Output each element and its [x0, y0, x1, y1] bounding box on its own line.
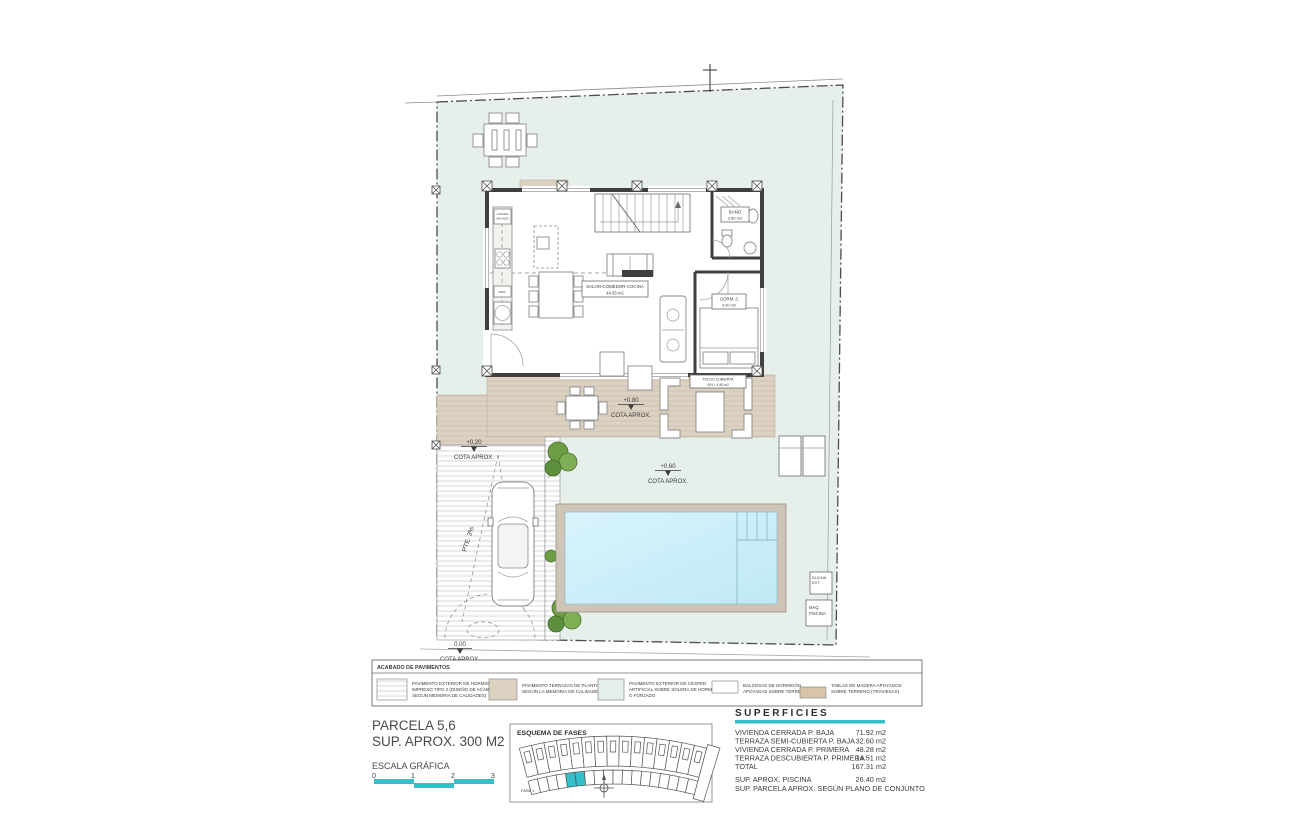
bush — [545, 550, 557, 562]
fase-parcel-cell — [613, 770, 623, 784]
drawing-sheet: PTE. 3% — [0, 0, 1290, 840]
fase-parcel-cell — [610, 741, 616, 752]
scale-label: ESCALA GRÁFICA — [372, 761, 450, 771]
svg-text:EXT.: EXT. — [812, 580, 820, 585]
wood-sleeper-swatch — [800, 687, 826, 698]
superficies-rows: VIVIENDA CERRADA P. BAJA 71.92 m2 TERRAZ… — [735, 728, 925, 793]
svg-text:+0.20: +0.20 — [466, 440, 482, 446]
svg-text:0: 0 — [372, 773, 376, 780]
car — [488, 482, 538, 606]
utility-pole — [703, 64, 717, 92]
salon-label: SALON-COMEDOR-COCINA 44.93 m2 — [582, 281, 648, 297]
svg-text:APOYADAS SOBRE TERRENO: APOYADAS SOBRE TERRENO — [743, 689, 808, 694]
wall-stub — [622, 270, 653, 277]
svg-text:TOLDO CUBIERTA: TOLDO CUBIERTA — [702, 378, 734, 382]
esquema-de-fases: ESQUEMA DE FASES FASE 1 — [510, 724, 720, 802]
fase-parcel-cell — [584, 771, 594, 786]
table-row-value: 167.31 m2 — [852, 762, 886, 771]
svg-text:PISCINA: PISCINA — [809, 611, 826, 616]
fase-parcel-cell — [631, 771, 641, 786]
esquema-title: ESQUEMA DE FASES — [517, 730, 587, 737]
parcel-title: PARCELA 5,6 — [372, 718, 456, 733]
svg-text:9.90 m2: 9.90 m2 — [722, 304, 736, 308]
svg-text:SALON-COMEDOR-COCINA: SALON-COMEDOR-COCINA — [586, 284, 644, 289]
dorm-label: DORM. 3 9.90 m2 — [712, 294, 746, 309]
svg-text:LAVADO: LAVADO — [497, 212, 509, 216]
svg-text:0.00: 0.00 — [454, 642, 466, 648]
svg-text:COTA APROX.: COTA APROX. — [648, 479, 688, 485]
svg-text:IMPRESO TIPO 2 (DISEÑO DE ACAB: IMPRESO TIPO 2 (DISEÑO DE ACABADO — [412, 686, 499, 692]
superficies-title: SUPERFICIES — [735, 708, 829, 719]
fase-label: FASE 1 — [521, 788, 535, 793]
pool-machinery-box: MAQ. PISCINA — [806, 600, 832, 626]
svg-text:DORM. 3: DORM. 3 — [720, 297, 738, 302]
pool — [556, 504, 786, 612]
fase-parcel-cell — [573, 743, 580, 755]
fase-parcel-cell — [634, 742, 640, 753]
toldo-label: TOLDO CUBIERTA S/N = 4.50 m2 — [690, 375, 746, 388]
superficies-table: SUPERFICIES VIVIENDA CERRADA P. BAJA 71.… — [735, 708, 925, 793]
svg-text:+0.80: +0.80 — [623, 398, 639, 404]
piscina-value: 26.40 m2 — [856, 775, 886, 784]
svg-text:MAQ.: MAQ. — [809, 605, 820, 610]
kitchen-counter: LAVADO SECADO FRIG. — [493, 207, 512, 330]
striped-concrete-swatch — [377, 679, 407, 700]
bed — [700, 308, 758, 368]
svg-text:+0.60: +0.60 — [660, 464, 676, 470]
svg-text:PAVIMENTO EXTERIOR DE CÉSPED: PAVIMENTO EXTERIOR DE CÉSPED — [629, 680, 707, 686]
stairs — [595, 194, 690, 232]
beige-terrace-swatch — [489, 679, 517, 700]
superficies-footnote: SUP. PARCELA APROX. SEGÚN PLANO DE CONJU… — [735, 784, 925, 793]
svg-text:SEGÚN LA MEMORIA DE CALIDADES: SEGÚN LA MEMORIA DE CALIDADES — [522, 688, 601, 694]
parcel-area: SUP. APROX. 300 M2 — [372, 734, 505, 749]
house: BAÑO 3.80 m2 LAVADO — [483, 186, 766, 390]
svg-text:BAÑO: BAÑO — [729, 210, 742, 215]
site-plan-svg: PTE. 3% — [0, 0, 1290, 840]
white-slab-swatch — [712, 681, 738, 693]
fase-parcel-cell — [622, 770, 632, 784]
svg-text:FRIG.: FRIG. — [499, 290, 507, 294]
paving-legend: ACABADO DE PAVIMENTOS PAVIMENTO EXTERIOR… — [372, 660, 922, 706]
svg-text:BALDOSAS DE HORMIGÓN: BALDOSAS DE HORMIGÓN — [743, 682, 801, 688]
legend-title: ACABADO DE PAVIMENTOS — [377, 665, 450, 671]
svg-text:3.80 m2: 3.80 m2 — [728, 216, 743, 221]
fase-parcel-cell — [647, 743, 654, 755]
svg-text:1: 1 — [411, 773, 415, 780]
svg-text:COTA APROX.: COTA APROX. — [611, 413, 651, 419]
svg-text:PAVIMENTO EXTERIOR DE HORMIGÓN: PAVIMENTO EXTERIOR DE HORMIGÓN — [412, 680, 496, 686]
svg-text:2: 2 — [451, 773, 455, 780]
scale-bar: 0 1 2 3 — [372, 773, 495, 788]
svg-text:3: 3 — [491, 773, 495, 780]
svg-text:44.93 m2: 44.93 m2 — [606, 291, 624, 296]
svg-text:ARTIFICIAL SOBRE SOLERA DE HOR: ARTIFICIAL SOBRE SOLERA DE HORMIGÓN — [629, 686, 723, 692]
svg-text:COTA APROX.: COTA APROX. — [454, 455, 494, 461]
kitchen-island — [534, 226, 558, 268]
legend-item: BALDOSAS DE HORMIGÓN APOYADAS SOBRE TERR… — [712, 681, 808, 694]
fase-parcel-cell — [594, 770, 604, 784]
superficies-underline — [735, 720, 885, 724]
fase-parcel-cell — [598, 741, 604, 752]
bano-label: BAÑO 3.80 m2 — [721, 207, 749, 222]
legend-item: PAVIMENTO EXTERIOR DE HORMIGÓN IMPRESO T… — [377, 679, 499, 700]
svg-text:SECADO: SECADO — [496, 217, 509, 221]
artificial-grass-swatch — [598, 679, 624, 700]
svg-text:O FORJADO: O FORJADO — [629, 693, 656, 698]
title-block: PARCELA 5,6 SUP. APROX. 300 M2 ESCALA GR… — [372, 718, 505, 788]
svg-text:SOBRE TERRENO (TRAVIESAS): SOBRE TERRENO (TRAVIESAS) — [831, 689, 900, 694]
table-row-label: TOTAL — [735, 762, 758, 771]
dining-table — [529, 272, 583, 318]
fase-parcel-cell — [575, 771, 586, 786]
svg-text:SEGÚN MEMORIA DE CALIDADES): SEGÚN MEMORIA DE CALIDADES) — [412, 692, 487, 698]
outdoor-shower-box: DUCHA EXT. — [810, 572, 832, 594]
sofa — [660, 296, 686, 362]
svg-text:S/N = 4.50 m2: S/N = 4.50 m2 — [707, 383, 729, 387]
piscina-label: SUP. APROX. PISCINA — [735, 775, 812, 784]
fase-parcel-cell — [585, 742, 591, 753]
fase-parcel-cell — [622, 741, 628, 752]
svg-text:TABLAS DE MADERA APOYADOS: TABLAS DE MADERA APOYADOS — [831, 683, 902, 688]
